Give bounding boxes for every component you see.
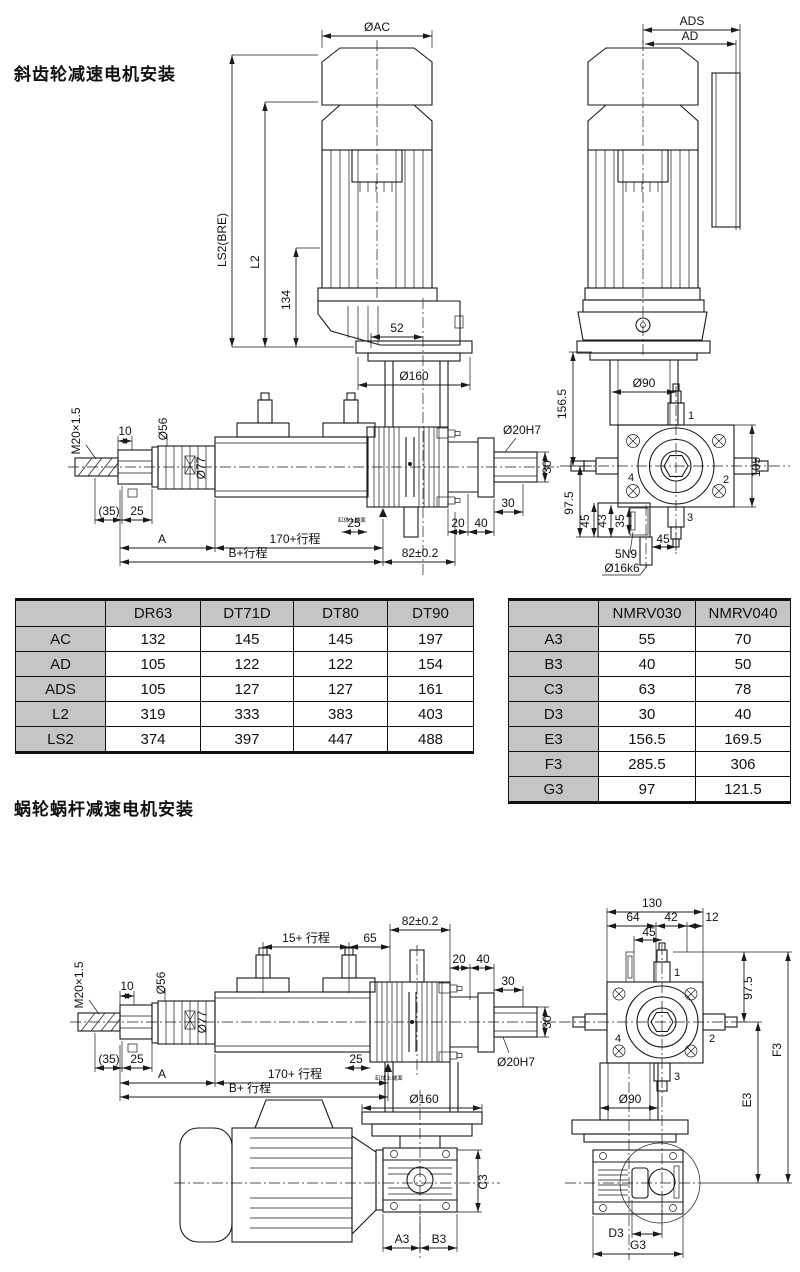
dim-45: 45 — [642, 925, 656, 939]
dim-B: B+行程 — [228, 545, 267, 560]
dim-170: 170+行程 — [269, 531, 320, 546]
dim-35p: (35) — [98, 1052, 119, 1066]
cylinder-assembly — [75, 393, 375, 497]
dim-o90: Ø90 — [633, 376, 656, 390]
dim-20: 20 — [451, 516, 465, 530]
column-header: NMRV030 — [599, 600, 696, 627]
table-row: E3 156.5 169.5 — [509, 727, 791, 752]
table-row: D3 30 40 — [509, 702, 791, 727]
dim-156: 156.5 — [555, 389, 569, 419]
dim-l2: L2 — [248, 255, 262, 269]
centerlines — [560, 40, 790, 556]
port-3: 3 — [674, 1071, 680, 1083]
dim-o77: Ø77 — [195, 1010, 209, 1033]
dim-64: 64 — [626, 910, 640, 924]
dim-10: 10 — [118, 424, 132, 438]
dim-65: 65 — [363, 931, 377, 945]
table-row: L2 319 333 383 403 — [16, 702, 474, 727]
dim-value-cell: 78 — [696, 677, 791, 702]
dim-42: 42 — [664, 910, 678, 924]
helical-dimension-table: DR63 DT71D DT80 DT90 AC 132 145 145 197 … — [15, 598, 474, 754]
table-row: F3 285.5 306 — [509, 752, 791, 777]
corner-header — [16, 600, 106, 627]
port-1: 1 — [688, 410, 694, 422]
dim-40: 40 — [476, 952, 490, 966]
dim-170: 170+ 行程 — [268, 1066, 322, 1081]
dim-m20: M20×1.5 — [72, 961, 86, 1008]
port-2: 2 — [709, 1033, 715, 1045]
dim-30b: 30 — [540, 460, 554, 474]
dim-25r: 25 — [349, 1052, 363, 1066]
dim-B: B+ 行程 — [229, 1080, 271, 1095]
centerlines — [560, 944, 750, 1260]
dim-12: 12 — [705, 910, 719, 924]
dim-c3: C3 — [476, 1174, 490, 1190]
dim-value-cell: 403 — [388, 702, 474, 727]
worm-dimension-table: NMRV030 NMRV040 A3 55 70 B3 40 50 C3 63 … — [508, 598, 791, 804]
side-dimensions: ADS AD 156.5 97.5 105 45 43 35 — [555, 14, 763, 575]
table-row: AC 132 145 145 197 — [16, 627, 474, 652]
row-header: L2 — [16, 702, 106, 727]
dim-o20h7: Ø20H7 — [503, 423, 541, 437]
dim-value-cell: 145 — [294, 627, 388, 652]
dim-30b: 30 — [540, 1015, 554, 1029]
dim-value-cell: 197 — [388, 627, 474, 652]
dim-o90: Ø90 — [619, 1092, 642, 1106]
flange-and-gearbox — [362, 1062, 482, 1212]
dim-value-cell: 169.5 — [696, 727, 791, 752]
row-header: B3 — [509, 652, 599, 677]
dim-value-cell: 30 — [599, 702, 696, 727]
note-cylinder-face: 缸体上端面 — [338, 516, 366, 524]
dim-o160: Ø160 — [399, 369, 429, 383]
dim-ad: AD — [682, 29, 699, 43]
section-title-worm: 蜗轮蜗杆减速电机安装 — [14, 795, 194, 820]
dim-82: 82±0.2 — [402, 546, 439, 560]
row-header: ADS — [16, 677, 106, 702]
dim-value-cell: 161 — [388, 677, 474, 702]
dim-35p: (35) — [98, 504, 119, 518]
dim-value-cell: 122 — [294, 652, 388, 677]
dim-o56: Ø56 — [154, 971, 168, 994]
row-header: F3 — [509, 752, 599, 777]
worm-motor — [180, 1100, 376, 1242]
table-row: A3 55 70 — [509, 627, 791, 652]
dim-value-cell: 40 — [599, 652, 696, 677]
catalog-page: 斜齿轮减速电机安装 蜗轮蜗杆减速电机安装 — [0, 0, 800, 1272]
dim-82: 82±0.2 — [402, 914, 439, 928]
port-4: 4 — [628, 472, 634, 484]
row-header: AC — [16, 627, 106, 652]
dim-value-cell: 122 — [201, 652, 294, 677]
dim-value-cell: 333 — [201, 702, 294, 727]
dim-value-cell: 397 — [201, 727, 294, 753]
dim-25l: 25 — [130, 504, 144, 518]
dim-value-cell: 105 — [106, 677, 201, 702]
dim-45b: 45 — [656, 532, 670, 546]
cylinder-assembly — [78, 948, 375, 1052]
table-row: C3 63 78 — [509, 677, 791, 702]
dim-97: 97.5 — [741, 976, 755, 1000]
dim-d3: D3 — [608, 1226, 624, 1240]
dim-value-cell: 132 — [106, 627, 201, 652]
column-header: DT80 — [294, 600, 388, 627]
dim-f3: F3 — [770, 1043, 784, 1057]
table-row: G3 97 121.5 — [509, 777, 791, 803]
dim-value-cell: 383 — [294, 702, 388, 727]
row-header: G3 — [509, 777, 599, 803]
dim-value-cell: 55 — [599, 627, 696, 652]
drive-unit-front — [370, 950, 462, 1062]
row-header: D3 — [509, 702, 599, 727]
dim-A: A — [158, 532, 166, 546]
dim-10: 10 — [120, 979, 134, 993]
output-shaft-front — [448, 438, 537, 497]
dim-value-cell: 156.5 — [599, 727, 696, 752]
dim-30a: 30 — [501, 974, 515, 988]
dim-value-cell: 40 — [696, 702, 791, 727]
gearbox-front: 52 — [318, 288, 463, 348]
dim-40: 40 — [474, 516, 488, 530]
column-header: DR63 — [106, 600, 201, 627]
dim-130: 130 — [642, 896, 662, 910]
dim-5n9: 5N9 — [615, 547, 637, 561]
helical-front-view: 52 Ø160 — [68, 20, 560, 578]
dim-ads: ADS — [680, 14, 705, 28]
dim-a3: A3 — [395, 1232, 410, 1246]
drive-unit-front — [367, 427, 460, 537]
dim-o20h7: Ø20H7 — [497, 1055, 535, 1069]
dim-value-cell: 145 — [201, 627, 294, 652]
port-1: 1 — [674, 967, 680, 979]
row-header: LS2 — [16, 727, 106, 753]
table-row: ADS 105 127 127 161 — [16, 677, 474, 702]
dim-m20: M20×1.5 — [69, 407, 83, 454]
column-header: NMRV040 — [696, 600, 791, 627]
dim-oac: ØAC — [364, 20, 390, 34]
dim-value-cell: 63 — [599, 677, 696, 702]
worm-side-view: 1 2 3 4 — [560, 896, 792, 1260]
dim-value-cell: 285.5 — [599, 752, 696, 777]
dim-e3: E3 — [740, 1092, 754, 1107]
dim-134: 134 — [279, 290, 293, 310]
row-header: AD — [16, 652, 106, 677]
corner-header — [509, 600, 599, 627]
dim-value-cell: 374 — [106, 727, 201, 753]
table-row: LS2 374 397 447 488 — [16, 727, 474, 753]
dim-o77: Ø77 — [194, 456, 208, 479]
dim-g3: G3 — [630, 1238, 646, 1252]
dim-25l: 25 — [130, 1052, 144, 1066]
dim-value-cell: 50 — [696, 652, 791, 677]
motor-side — [588, 48, 740, 288]
worm-front-view: 15+ 行程 65 82±0.2 20 40 30 30 Ø20H7 M20×1… — [70, 914, 560, 1260]
drive-unit-face: 1 2 3 4 — [573, 943, 737, 1091]
dim-A: A — [158, 1067, 166, 1081]
dim-value-cell: 121.5 — [696, 777, 791, 803]
dim-value-cell: 319 — [106, 702, 201, 727]
dim-o56: Ø56 — [156, 417, 170, 440]
dim-43: 43 — [595, 514, 609, 528]
dim-b3: B3 — [432, 1232, 447, 1246]
row-header: A3 — [509, 627, 599, 652]
dim-value-cell: 306 — [696, 752, 791, 777]
dim-o16k6: Ø16k6 — [604, 561, 640, 575]
dim-15stroke: 15+ 行程 — [282, 930, 330, 945]
face-arrow — [379, 508, 387, 517]
dim-35: 35 — [613, 514, 627, 528]
dim-value-cell: 127 — [294, 677, 388, 702]
worm-front-dimensions: 15+ 行程 65 82±0.2 20 40 30 30 Ø20H7 M20×1… — [72, 914, 554, 1252]
dim-20: 20 — [452, 952, 466, 966]
dim-45a: 45 — [578, 514, 592, 528]
dim-value-cell: 70 — [696, 627, 791, 652]
worm-install-drawing: 15+ 行程 65 82±0.2 20 40 30 30 Ø20H7 M20×1… — [0, 880, 800, 1272]
table-row: B3 40 50 — [509, 652, 791, 677]
worm-side-dimensions: 130 64 42 12 45 97.5 E3 F3 Ø90 — [593, 896, 792, 1258]
dim-value-cell: 105 — [106, 652, 201, 677]
helical-installation-drawing: 52 Ø160 — [0, 0, 800, 592]
port-2: 2 — [723, 474, 729, 486]
dim-105: 105 — [749, 457, 763, 477]
gearbox-side — [577, 288, 710, 360]
column-header: DT71D — [201, 600, 294, 627]
column-header: DT90 — [388, 600, 474, 627]
output-flange: Ø160 — [356, 341, 472, 427]
dim-o160: Ø160 — [409, 1092, 439, 1106]
port-3: 3 — [687, 512, 693, 524]
port-4: 4 — [615, 1033, 621, 1045]
dim-value-cell: 488 — [388, 727, 474, 753]
dim-30a: 30 — [501, 496, 515, 510]
dim-value-cell: 154 — [388, 652, 474, 677]
dim-52: 52 — [390, 321, 404, 335]
output-shaft-front — [450, 993, 537, 1053]
row-header: C3 — [509, 677, 599, 702]
dim-ls2: LS2(BRE) — [215, 213, 229, 267]
dim-97: 97.5 — [562, 491, 576, 515]
table-row: AD 105 122 122 154 — [16, 652, 474, 677]
row-header: E3 — [509, 727, 599, 752]
dim-value-cell: 97 — [599, 777, 696, 803]
dim-value-cell: 447 — [294, 727, 388, 753]
helical-side-view: Ø90 1 2 3 — [555, 14, 790, 575]
note-cylinder-face: 缸体上端面 — [375, 1074, 403, 1082]
dim-value-cell: 127 — [201, 677, 294, 702]
